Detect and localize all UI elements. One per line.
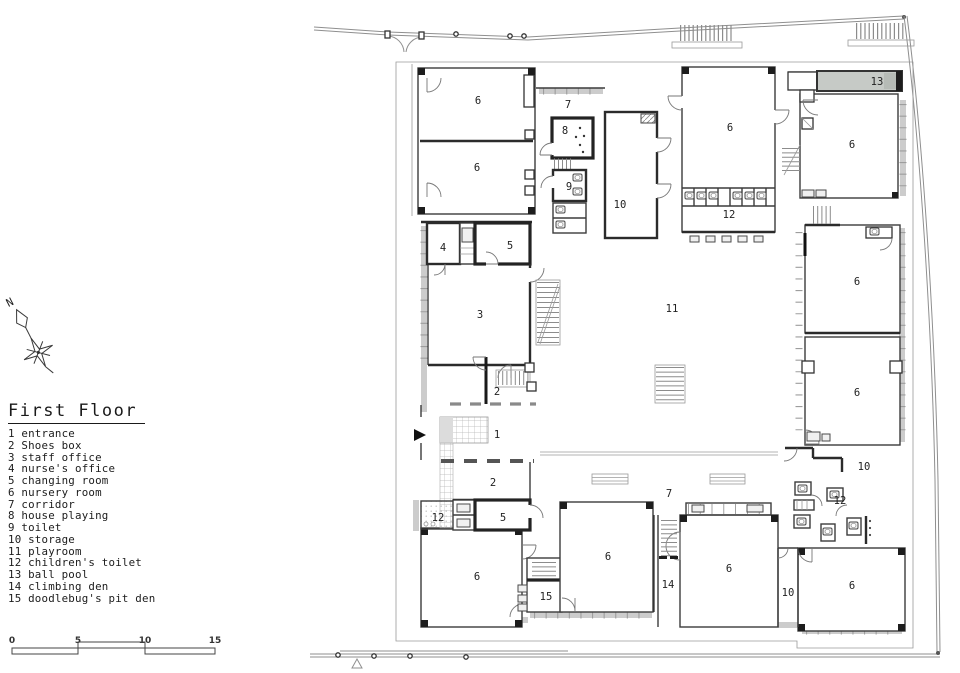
- legend-item-climbing-den: 14 climbing den: [8, 581, 155, 593]
- room-label-nursery-g: 6: [474, 571, 480, 583]
- room-label-nursery-j: 6: [849, 580, 855, 592]
- room-label-nursery-d: 6: [849, 139, 855, 151]
- legend-item-entrance: 1 entrance: [8, 428, 155, 440]
- room-label-nursery-f: 6: [854, 387, 860, 399]
- room-label-house-playing: 8: [562, 125, 568, 137]
- room-label-changing-b: 5: [500, 512, 506, 524]
- room-label-shoes-b: 2: [490, 477, 496, 489]
- entrance-arrow-icon: [414, 429, 426, 441]
- room-label-corridor-b: 7: [666, 488, 672, 500]
- page: { "title": "First Floor", "compass": { "…: [0, 0, 960, 669]
- room-label-nurse-office: 4: [440, 242, 446, 254]
- legend-item-ball-pool: 13 ball pool: [8, 569, 155, 581]
- room-toilet-9: [541, 170, 586, 233]
- scale-tick-15: 15: [209, 636, 222, 646]
- scale-tick-0: 0: [9, 636, 15, 646]
- room-label-nursery-b: 6: [474, 162, 480, 174]
- room-label-climbing-den: 14: [662, 579, 675, 591]
- playroom-court: [540, 365, 778, 484]
- block-nursery-right: [802, 215, 902, 445]
- room-label-toilet: 9: [566, 181, 572, 193]
- room-label-nursery-h: 6: [605, 551, 611, 563]
- scale-bar-segments: [12, 642, 215, 654]
- room-label-nursery-c: 6: [727, 122, 733, 134]
- floor-plan: 6 6 7 8 9 10 6 12 13 6 4 5 3 11 6 6 2 1 …: [300, 0, 960, 669]
- legend-item-changing-room: 5 changing room: [8, 475, 155, 487]
- room-label-storage-c: 10: [858, 461, 871, 473]
- block-nursery-top-left: [418, 68, 535, 214]
- room-label-ch-toilet-b: 12: [432, 512, 445, 524]
- room-label-nursery-i: 6: [726, 563, 732, 575]
- entry-ramp-hatch: [672, 31, 914, 48]
- room-label-changing-a: 5: [507, 240, 513, 252]
- block-bottom-right: [784, 448, 905, 631]
- room-label-nursery-a: 6: [475, 95, 481, 107]
- legend-item-nursery-room: 6 nursery room: [8, 487, 155, 499]
- room-label-ch-toilet-c: 12: [834, 495, 847, 507]
- room-label-ch-toilet-a: 12: [723, 209, 736, 221]
- room-label-staff-office: 3: [477, 309, 483, 321]
- north-label: N: [4, 295, 16, 310]
- room-legend: 1 entrance 2 Shoes box 3 staff office 4 …: [8, 428, 155, 604]
- room-label-shoes-a: 2: [494, 386, 500, 398]
- legend-item-doodlebug: 15 doodlebug's pit den: [8, 593, 155, 605]
- room-label-playroom: 11: [666, 303, 679, 315]
- room-label-ball-pool: 13: [871, 76, 884, 88]
- north-arrow: N: [4, 288, 60, 384]
- floor-plan-area: 6 6 7 8 9 10 6 12 13 6 4 5 3 11 6 6 2 1 …: [300, 0, 960, 669]
- room-label-corridor-a: 7: [565, 99, 571, 111]
- block-ballpool-nursery: [784, 71, 902, 198]
- room-label-nursery-e: 6: [854, 276, 860, 288]
- legend-item-shoes-box: 2 Shoes box: [8, 440, 155, 452]
- legend-item-storage: 10 storage: [8, 534, 155, 546]
- floor-title: First Floor: [8, 401, 145, 424]
- room-label-storage-a: 10: [614, 199, 627, 211]
- room-label-storage-b: 10: [782, 587, 795, 599]
- legend-panel: N First Floor 1 entrance 2 Shoes box 3 s…: [0, 0, 300, 669]
- block-nursery-climbing: [642, 503, 798, 627]
- room-label-doodlebug: 15: [540, 591, 553, 603]
- room-storage-top: [605, 112, 671, 238]
- room-label-entrance: 1: [494, 429, 500, 441]
- legend-item-toilet: 9 toilet: [8, 522, 155, 534]
- scale-bar: 0 5 10 15: [8, 634, 238, 662]
